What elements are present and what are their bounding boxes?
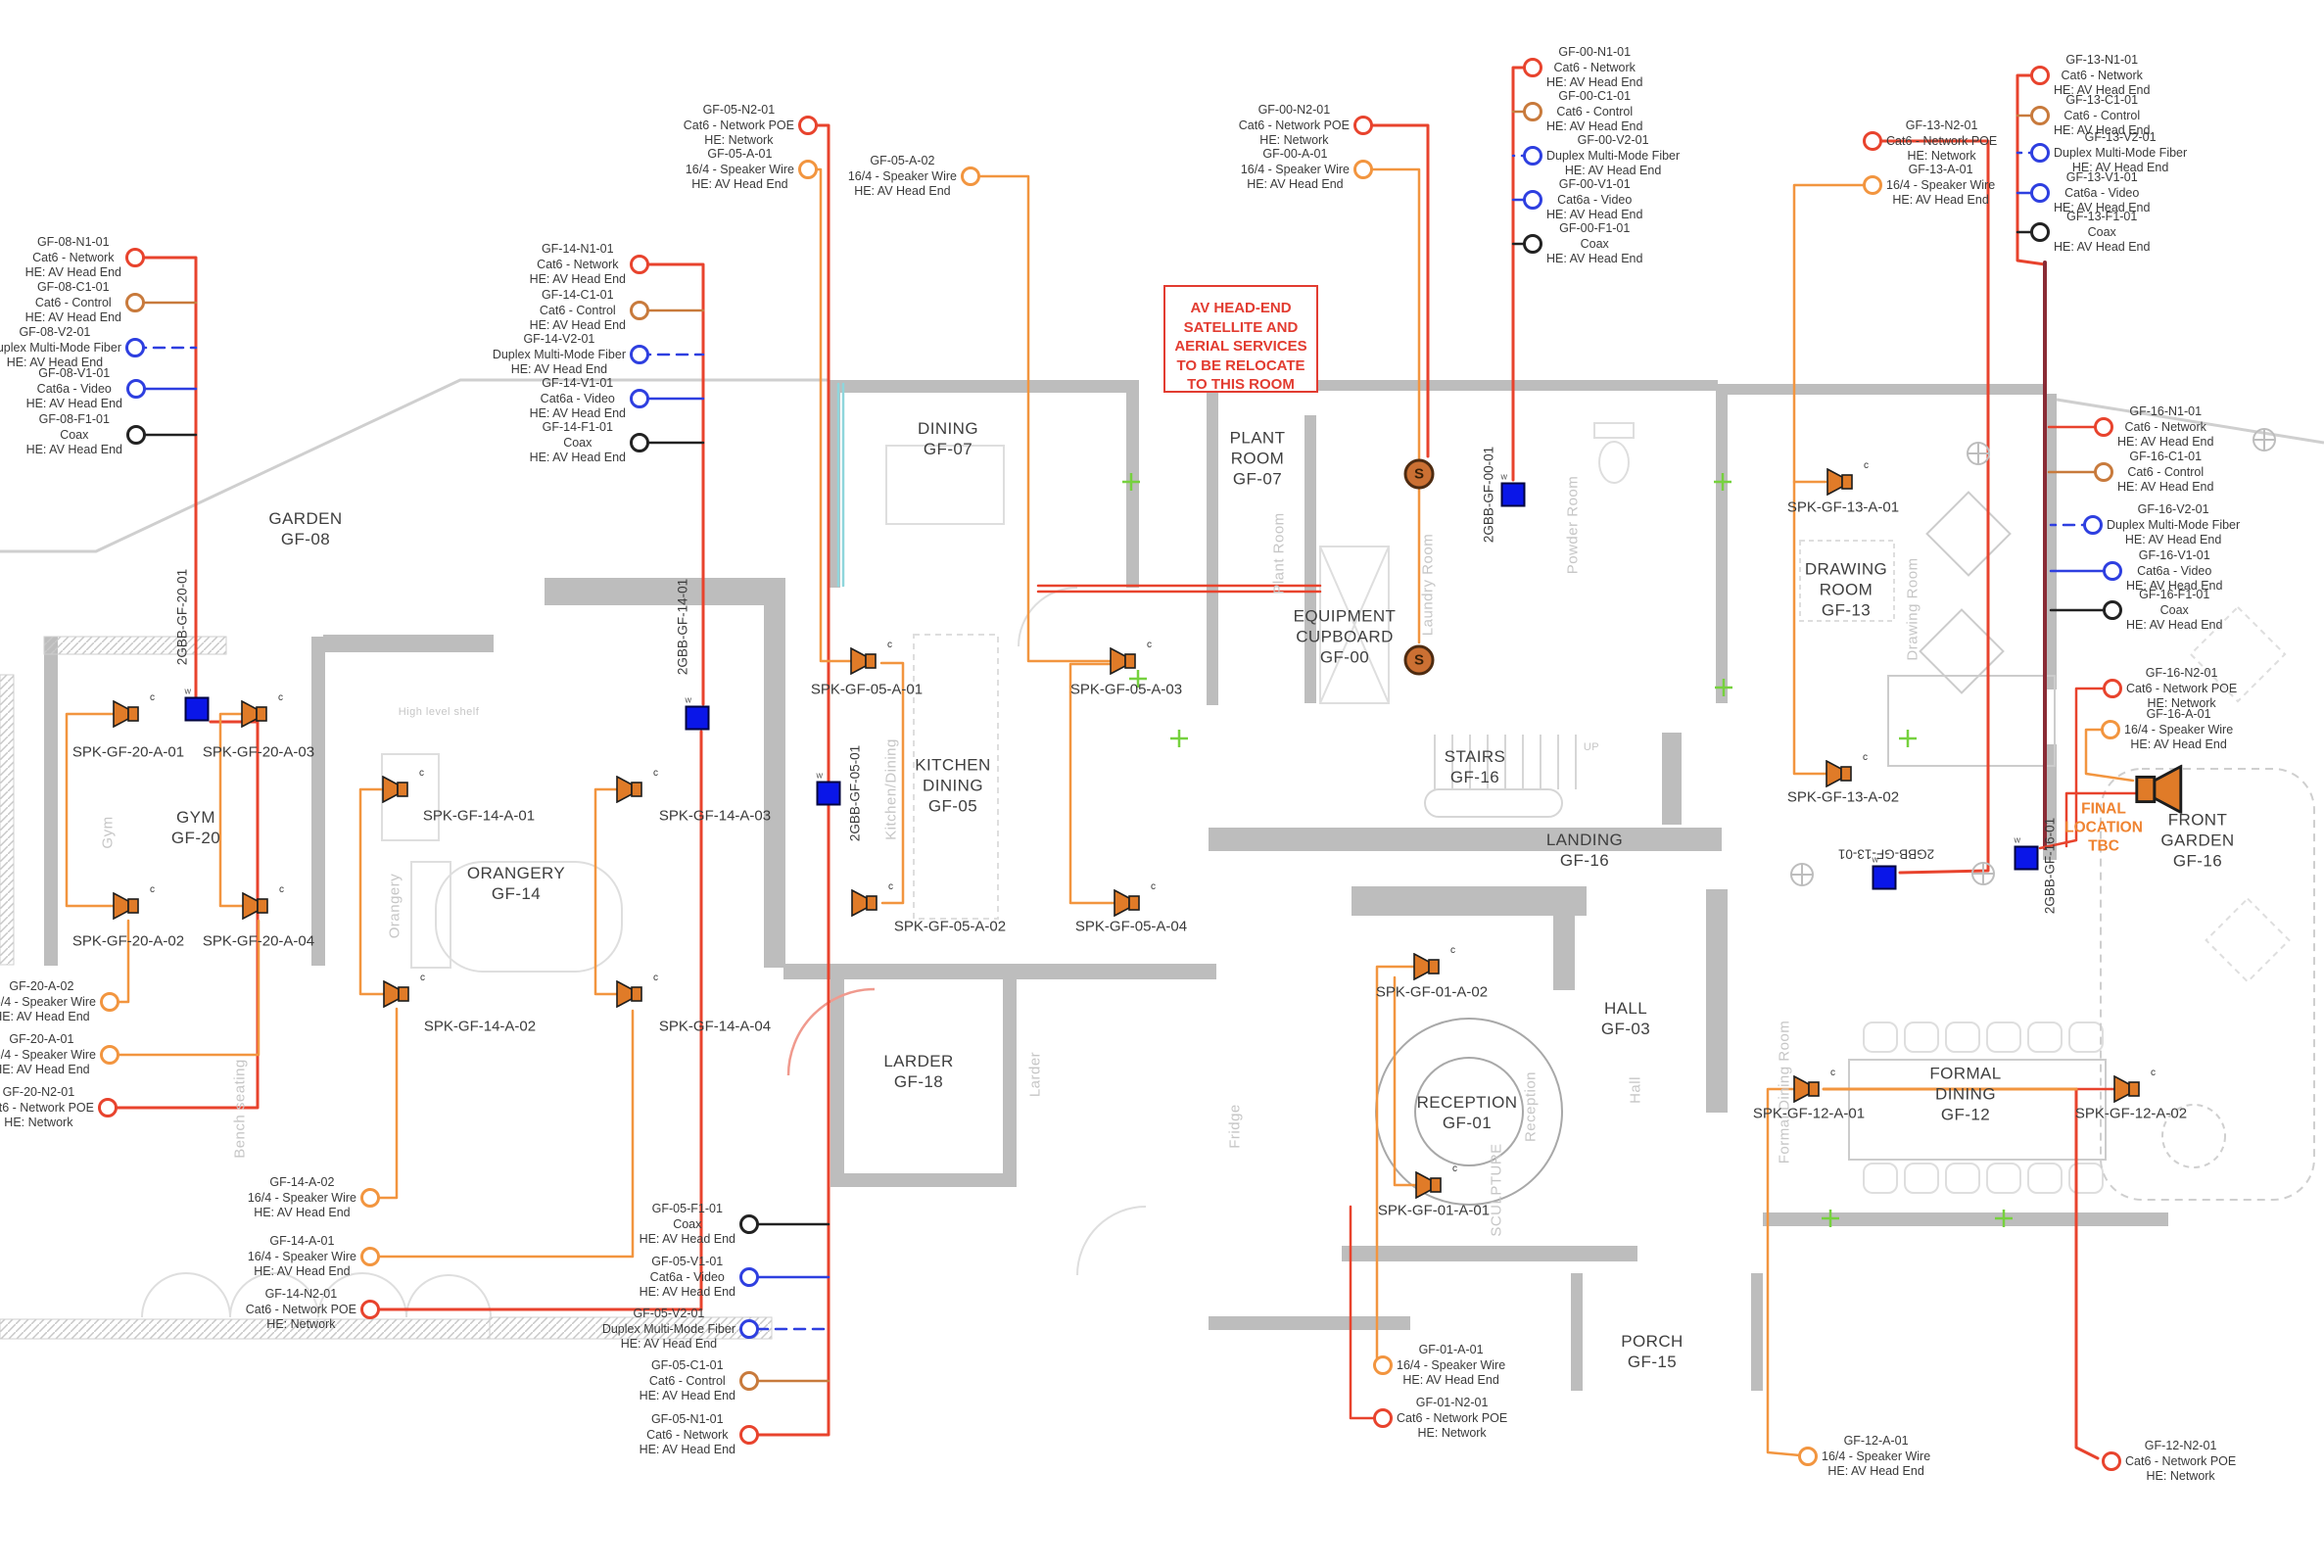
keypad-label: 2GBB-GF-16-01 [2043, 818, 2058, 914]
callout-line: GF-08-F1-01 [26, 412, 122, 428]
speaker-icon: c [1110, 647, 1143, 675]
speaker-icon: c [241, 700, 274, 728]
cable-callout: GF-14-F1-01CoaxHE: AV Head End [530, 420, 626, 466]
callout-line: GF-13-A-01 [1886, 163, 1995, 178]
callout-endpoint-circle [2103, 679, 2122, 698]
architectural-label: Larder [1027, 1052, 1044, 1097]
callout-line: 16/4 - Speaker Wire [1241, 162, 1350, 177]
callout-line: Coax [530, 435, 626, 451]
survey-marker-icon [1968, 443, 1989, 464]
callout-endpoint-circle [100, 1045, 119, 1065]
callout-line: Cat6 - Control [530, 303, 626, 318]
speaker-icon: c [1413, 953, 1447, 980]
cable-callout: GF-05-C1-01Cat6 - ControlHE: AV Head End [640, 1358, 735, 1404]
callout-line: HE: AV Head End [640, 1389, 735, 1404]
keypad-label: 2GBB-GF-05-01 [848, 745, 863, 841]
green-cross-marker [1995, 1210, 2013, 1227]
cables-layer [0, 0, 2324, 1568]
cable-callout: GF-00-V2-01Duplex Multi-Mode FiberHE: AV… [1546, 133, 1680, 179]
speaker-icon: c [850, 647, 883, 675]
callout-line: GF-05-A-02 [848, 154, 957, 169]
cable-callout: GF-05-N1-01Cat6 - NetworkHE: AV Head End [640, 1412, 735, 1458]
callout-line: Duplex Multi-Mode Fiber [1546, 148, 1680, 164]
callout-line: GF-16-F1-01 [2126, 588, 2222, 603]
speaker-label: SPK-GF-12-A-01 [1753, 1106, 1865, 1122]
cable-wire [808, 169, 853, 661]
callout-line: Cat6 - Control [640, 1373, 735, 1389]
survey-marker-icon [1972, 863, 1994, 884]
callout-endpoint-circle [98, 1098, 118, 1117]
architectural-label: Hall [1628, 1076, 1644, 1104]
speaker-label: SPK-GF-20-A-01 [72, 744, 184, 761]
room-label: ORANGERY GF-14 [467, 863, 565, 904]
callout-endpoint-circle [100, 992, 119, 1012]
callout-line: GF-00-V1-01 [1546, 177, 1642, 193]
cable-wire [370, 1011, 633, 1257]
callout-line: GF-16-V2-01 [2107, 502, 2240, 518]
callout-endpoint-circle [126, 425, 146, 445]
room-label: DRAWING ROOM GF-13 [1805, 559, 1887, 621]
keypad-mark: w [2015, 835, 2021, 845]
callout-line: GF-16-N2-01 [2126, 666, 2237, 682]
room-label: PORCH GF-15 [1621, 1331, 1683, 1372]
green-cross-marker [1822, 1210, 1839, 1227]
architectural-label: Orangery [387, 874, 403, 939]
cable-wire [1513, 68, 1533, 480]
callout-line: Cat6 - Network POE [2125, 1453, 2236, 1469]
speaker-icon: c [1114, 889, 1147, 917]
cable-callout: GF-14-V1-01Cat6a - VideoHE: AV Head End [530, 376, 626, 422]
keypad-mark: w [817, 771, 824, 781]
cable-callout: GF-13-N2-01Cat6 - Network POEHE: Network [1886, 119, 1997, 165]
callout-line: Cat6a - Video [640, 1269, 735, 1285]
keypad-icon: w [185, 697, 210, 722]
callout-line: HE: AV Head End [1241, 177, 1350, 193]
callout-line: GF-20-A-01 [0, 1032, 96, 1048]
cable-callout: GF-00-F1-01CoaxHE: AV Head End [1546, 221, 1642, 267]
callout-line: Cat6a - Video [2054, 185, 2150, 201]
ceiling-mark: c [420, 973, 425, 983]
speaker-icon: c [1793, 1075, 1826, 1103]
callout-line: GF-16-N1-01 [2117, 404, 2213, 420]
callout-line: GF-20-N2-01 [0, 1085, 94, 1101]
callout-endpoint-circle [2103, 600, 2122, 620]
cable-callout: GF-16-C1-01Cat6 - ControlHE: AV Head End [2117, 450, 2213, 496]
callout-line: HE: AV Head End [2054, 240, 2150, 256]
architectural-label: High level shelf [399, 706, 480, 718]
callout-line: Coax [640, 1216, 735, 1232]
survey-marker-icon [2253, 429, 2275, 451]
callout-endpoint-circle [630, 345, 649, 364]
callout-endpoint-circle [2083, 515, 2103, 535]
callout-endpoint-circle [360, 1188, 380, 1208]
callout-line: Duplex Multi-Mode Fiber [2107, 517, 2240, 533]
callout-line: Cat6a - Video [26, 381, 122, 397]
callout-line: HE: AV Head End [1397, 1373, 1505, 1389]
callout-line: Coax [2126, 602, 2222, 618]
ceiling-mark: c [888, 881, 893, 892]
cable-callout: GF-08-V1-01Cat6a - VideoHE: AV Head End [26, 366, 122, 412]
cable-wire [595, 789, 618, 994]
callout-line: Coax [26, 427, 122, 443]
ceiling-mark: c [278, 692, 283, 703]
survey-marker-icon [1791, 864, 1813, 885]
callout-endpoint-circle [739, 1267, 759, 1287]
callout-line: Cat6 - Control [2117, 464, 2213, 480]
callout-line: Duplex Multi-Mode Fiber [493, 347, 626, 362]
speaker-icon: c [616, 980, 649, 1008]
cable-callout: GF-14-N2-01Cat6 - Network POEHE: Network [246, 1287, 356, 1333]
architectural-label: Laundry Room [1420, 534, 1437, 636]
callout-line: HE: AV Head End [1886, 193, 1995, 209]
callout-line: GF-05-F1-01 [640, 1202, 735, 1217]
cable-callout: GF-08-V2-01Duplex Multi-Mode FiberHE: AV… [0, 325, 121, 371]
cable-callout: GF-14-A-0216/4 - Speaker WireHE: AV Head… [248, 1175, 356, 1221]
callout-endpoint-circle [739, 1214, 759, 1234]
room-label: RECEPTION GF-01 [1417, 1092, 1518, 1133]
cable-callout: GF-14-C1-01Cat6 - ControlHE: AV Head End [530, 288, 626, 334]
callout-line: GF-16-C1-01 [2117, 450, 2213, 465]
callout-endpoint-circle [125, 293, 145, 312]
ceiling-mark: c [1864, 460, 1869, 471]
callout-line: GF-16-V1-01 [2126, 548, 2222, 564]
speaker-label: SPK-GF-05-A-03 [1070, 682, 1182, 698]
architectural-label: Gym [100, 816, 117, 848]
callout-line: GF-00-C1-01 [1546, 89, 1642, 105]
callout-line: 16/4 - Speaker Wire [2124, 722, 2233, 737]
cable-wire [971, 176, 1113, 661]
keypad-mark: w [686, 695, 692, 705]
green-cross-marker [1170, 730, 1188, 747]
callout-line: 16/4 - Speaker Wire [248, 1190, 356, 1206]
speaker-label: SPK-GF-20-A-03 [203, 744, 314, 761]
cable-callout: GF-00-N2-01Cat6 - Network POEHE: Network [1239, 103, 1350, 149]
cable-callout: GF-16-A-0116/4 - Speaker WireHE: AV Head… [2124, 707, 2233, 753]
speaker-label: SPK-GF-14-A-01 [423, 808, 535, 825]
callout-line: Cat6a - Video [2126, 563, 2222, 579]
callout-endpoint-circle [2030, 106, 2050, 125]
callout-line: GF-08-N1-01 [25, 235, 121, 251]
callout-endpoint-circle [2030, 183, 2050, 203]
cable-wire [220, 714, 243, 906]
room-label: DINING GF-07 [918, 418, 978, 459]
callout-line: GF-14-N1-01 [530, 242, 626, 258]
callout-line: 16/4 - Speaker Wire [248, 1249, 356, 1264]
cable-callout: GF-05-A-0116/4 - Speaker WireHE: AV Head… [686, 147, 794, 193]
callout-line: HE: AV Head End [2124, 737, 2233, 753]
architectural-label: Reception [1523, 1071, 1540, 1142]
callout-line: GF-13-V2-01 [2054, 130, 2187, 146]
keypad-icon: w [686, 706, 710, 731]
callout-line: Cat6 - Network [2117, 419, 2213, 435]
ceiling-mark: c [653, 768, 658, 779]
callout-endpoint-circle [1353, 160, 1373, 179]
speaker-label: SPK-GF-20-A-02 [72, 933, 184, 950]
cable-callout: GF-13-A-0116/4 - Speaker WireHE: AV Head… [1886, 163, 1995, 209]
callout-line: HE: AV Head End [1822, 1464, 1930, 1480]
callout-line: GF-13-N2-01 [1886, 119, 1997, 134]
callout-line: GF-13-F1-01 [2054, 210, 2150, 225]
room-label: PLANT ROOM GF-07 [1230, 428, 1286, 490]
architectural-label: Drawing Room [1905, 557, 1921, 660]
architectural-label: Plant Room [1271, 512, 1288, 594]
cable-wire [1395, 977, 1420, 1185]
callout-line: HE: AV Head End [248, 1264, 356, 1280]
speaker-icon: c [2113, 1075, 2147, 1103]
callout-line: GF-14-A-01 [248, 1234, 356, 1250]
speaker-icon: c [616, 776, 649, 803]
callout-endpoint-circle [125, 338, 145, 357]
callout-line: HE: AV Head End [2117, 480, 2213, 496]
callout-line: Cat6 - Network POE [1239, 118, 1350, 133]
callout-endpoint-circle [1523, 102, 1542, 121]
callout-line: HE: AV Head End [26, 397, 122, 412]
s-device-marker: S [1404, 459, 1435, 490]
callout-line: Cat6 - Network POE [684, 118, 794, 133]
callout-endpoint-circle [360, 1247, 380, 1266]
speaker-label: SPK-GF-13-A-02 [1787, 789, 1899, 806]
cable-callout: GF-13-N1-01Cat6 - NetworkHE: AV Head End [2054, 53, 2150, 99]
callout-line: GF-00-V2-01 [1546, 133, 1680, 149]
callout-line: GF-14-V1-01 [530, 376, 626, 392]
callout-line: GF-13-V1-01 [2054, 170, 2150, 186]
speaker-label: SPK-GF-01-A-02 [1376, 984, 1488, 1001]
callout-endpoint-circle [2094, 462, 2113, 482]
ceiling-mark: c [1147, 640, 1152, 650]
callout-endpoint-circle [630, 301, 649, 320]
callout-line: Cat6a - Video [530, 391, 626, 406]
callout-line: HE: AV Head End [602, 1337, 735, 1353]
s-device-marker: S [1404, 645, 1435, 676]
keypad-label: 2GBB-GF-13-01 [1838, 847, 1934, 862]
callout-endpoint-circle [1353, 116, 1373, 135]
room-label: LARDER GF-18 [883, 1051, 953, 1092]
callout-line: Cat6 - Network POE [1886, 133, 1997, 149]
cable-callout: GF-13-F1-01CoaxHE: AV Head End [2054, 210, 2150, 256]
callout-endpoint-circle [1523, 234, 1542, 254]
speaker-icon: c [1826, 760, 1859, 787]
callout-line: Cat6a - Video [1546, 192, 1642, 208]
callout-line: GF-05-V1-01 [640, 1255, 735, 1270]
keypad-label: 2GBB-GF-00-01 [1482, 447, 1496, 543]
callout-endpoint-circle [1798, 1447, 1818, 1466]
architectural-label: Fridge [1227, 1104, 1244, 1149]
callout-line: GF-01-N2-01 [1397, 1396, 1507, 1411]
callout-endpoint-circle [1523, 146, 1542, 166]
callout-endpoint-circle [1523, 190, 1542, 210]
keypad-icon: w [1873, 866, 1897, 890]
callout-endpoint-circle [961, 166, 980, 186]
callout-endpoint-circle [630, 255, 649, 274]
speaker-label: SPK-GF-14-A-02 [424, 1019, 536, 1035]
callout-line: GF-05-N1-01 [640, 1412, 735, 1428]
ceiling-mark: c [150, 692, 155, 703]
callout-line: HE: AV Head End [1546, 252, 1642, 267]
callout-endpoint-circle [2030, 222, 2050, 242]
callout-line: GF-14-N2-01 [246, 1287, 356, 1303]
speaker-icon: c [382, 776, 415, 803]
speaker-icon: c [1826, 468, 1860, 496]
architectural-label: Bench seating [232, 1059, 249, 1159]
callout-line: Duplex Multi-Mode Fiber [602, 1321, 735, 1337]
speaker-icon: c [113, 700, 146, 728]
callout-line: 16/4 - Speaker Wire [1822, 1449, 1930, 1464]
callout-endpoint-circle [1373, 1355, 1393, 1375]
room-label: GARDEN GF-08 [268, 508, 342, 549]
callout-endpoint-circle [2030, 66, 2050, 85]
callout-line: HE: AV Head End [686, 177, 794, 193]
speaker-label: SPK-GF-13-A-01 [1787, 499, 1899, 516]
callout-line: 16/4 - Speaker Wire [0, 1047, 96, 1063]
callout-line: Cat6 - Network [530, 257, 626, 272]
callout-line: GF-00-F1-01 [1546, 221, 1642, 237]
speaker-label: SPK-GF-12-A-02 [2075, 1106, 2187, 1122]
ceiling-mark: c [653, 973, 658, 983]
cable-callout: GF-12-N2-01Cat6 - Network POEHE: Network [2125, 1439, 2236, 1485]
callout-line: GF-01-A-01 [1397, 1343, 1505, 1358]
architectural-label: Kitchen/Dining [883, 738, 900, 840]
cable-callout: GF-13-V2-01Duplex Multi-Mode FiberHE: AV… [2054, 130, 2187, 176]
room-label: KITCHEN DINING GF-05 [915, 755, 990, 817]
callout-line: 16/4 - Speaker Wire [1397, 1357, 1505, 1373]
keypad-mark: w [1501, 472, 1508, 482]
callout-line: HE: AV Head End [26, 443, 122, 458]
cable-callout: GF-20-A-0116/4 - Speaker WireHE: AV Head… [0, 1032, 96, 1078]
architectural-label: UP [1584, 741, 1599, 753]
callout-endpoint-circle [798, 160, 818, 179]
callout-line: GF-05-V2-01 [602, 1307, 735, 1322]
cable-wire [360, 789, 385, 994]
cable-callout: GF-00-A-0116/4 - Speaker WireHE: AV Head… [1241, 147, 1350, 193]
cable-callout: GF-05-N2-01Cat6 - Network POEHE: Network [684, 103, 794, 149]
cable-wire [67, 714, 115, 906]
ceiling-mark: c [1452, 1164, 1457, 1174]
cable-callout: GF-12-A-0116/4 - Speaker WireHE: AV Head… [1822, 1434, 1930, 1480]
cable-wire [640, 264, 703, 704]
speaker-label: SPK-GF-14-A-04 [659, 1019, 771, 1035]
callout-line: GF-16-A-01 [2124, 707, 2233, 723]
callout-line: HE: AV Head End [2117, 435, 2213, 451]
keypad-icon: w [1501, 483, 1526, 507]
callout-endpoint-circle [1373, 1408, 1393, 1428]
cable-callout: GF-05-F1-01CoaxHE: AV Head End [640, 1202, 735, 1248]
callout-endpoint-circle [2101, 720, 2120, 739]
callout-line: HE: Network [0, 1116, 94, 1131]
callout-line: GF-08-C1-01 [25, 280, 121, 296]
speaker-icon: c [383, 980, 416, 1008]
callout-line: GF-14-V2-01 [493, 332, 626, 348]
callout-line: GF-08-V2-01 [0, 325, 121, 341]
callout-line: HE: AV Head End [640, 1443, 735, 1458]
room-label: LANDING GF-16 [1546, 830, 1623, 871]
callout-line: Coax [1546, 236, 1642, 252]
relocation-note: AV HEAD-END SATELLITE AND AERIAL SERVICE… [1163, 285, 1318, 393]
speaker-icon: c [1415, 1171, 1448, 1199]
callout-line: HE: AV Head End [0, 1063, 96, 1078]
cable-callout: GF-05-V1-01Cat6a - VideoHE: AV Head End [640, 1255, 735, 1301]
speaker-icon: c [113, 892, 146, 920]
speaker-label: SPK-GF-05-A-04 [1075, 919, 1187, 935]
callout-line: GF-13-C1-01 [2054, 93, 2150, 109]
callout-line: HE: AV Head End [530, 272, 626, 288]
ceiling-mark: c [279, 884, 284, 895]
room-label: STAIRS GF-16 [1445, 746, 1506, 787]
callout-line: GF-14-A-02 [248, 1175, 356, 1191]
cable-wire [2076, 1089, 2098, 1458]
callout-line: GF-00-A-01 [1241, 147, 1350, 163]
cable-callout: GF-16-N2-01Cat6 - Network POEHE: Network [2126, 666, 2237, 712]
callout-endpoint-circle [1523, 58, 1542, 77]
room-label: HALL GF-03 [1601, 998, 1650, 1039]
keypad-label: 2GBB-GF-20-01 [175, 569, 190, 665]
green-cross-marker [1715, 679, 1732, 696]
architectural-label: Formal Dining Room [1777, 1021, 1793, 1164]
speaker-label: SPK-GF-05-A-01 [811, 682, 923, 698]
callout-line: Cat6 - Network [2054, 68, 2150, 83]
callout-endpoint-circle [2102, 1451, 2121, 1471]
cable-callout: GF-14-A-0116/4 - Speaker WireHE: AV Head… [248, 1234, 356, 1280]
cable-callout: GF-01-A-0116/4 - Speaker WireHE: AV Head… [1397, 1343, 1505, 1389]
callout-line: GF-08-V1-01 [26, 366, 122, 382]
callout-endpoint-circle [739, 1425, 759, 1445]
callout-line: Duplex Multi-Mode Fiber [2054, 145, 2187, 161]
keypad-mark: w [185, 687, 192, 696]
room-label: FRONT GARDEN GF-16 [2160, 810, 2234, 872]
ceiling-mark: c [1830, 1068, 1835, 1078]
callout-line: Cat6 - Network POE [1397, 1410, 1507, 1426]
callout-line: GF-13-N1-01 [2054, 53, 2150, 69]
room-label: GYM GF-20 [171, 807, 220, 848]
callout-line: GF-05-C1-01 [640, 1358, 735, 1374]
cable-callout: GF-08-F1-01CoaxHE: AV Head End [26, 412, 122, 458]
callout-line: Cat6 - Control [2054, 108, 2150, 123]
ceiling-mark: c [1450, 945, 1455, 956]
cable-callout: GF-00-N1-01Cat6 - NetworkHE: AV Head End [1546, 45, 1642, 91]
callout-line: GF-05-N2-01 [684, 103, 794, 119]
cable-callout: GF-16-N1-01Cat6 - NetworkHE: AV Head End [2117, 404, 2213, 451]
cable-callout: GF-00-V1-01Cat6a - VideoHE: AV Head End [1546, 177, 1642, 223]
speaker-label: SPK-GF-05-A-02 [894, 919, 1006, 935]
cable-callout: GF-01-N2-01Cat6 - Network POEHE: Network [1397, 1396, 1507, 1442]
callout-line: HE: Network [1397, 1426, 1507, 1442]
callout-line: 16/4 - Speaker Wire [686, 162, 794, 177]
callout-endpoint-circle [2030, 143, 2050, 163]
callout-line: GF-20-A-02 [0, 979, 96, 995]
callout-endpoint-circle [2094, 417, 2113, 437]
callout-endpoint-circle [630, 389, 649, 408]
callout-line: HE: AV Head End [25, 310, 121, 326]
cable-wire [1377, 967, 1418, 1362]
callout-line: Cat6 - Network POE [2126, 681, 2237, 696]
cable-callout: GF-16-F1-01CoaxHE: AV Head End [2126, 588, 2222, 634]
callout-line: GF-05-A-01 [686, 147, 794, 163]
callout-line: HE: Network [2125, 1469, 2236, 1485]
callout-line: Coax [2054, 224, 2150, 240]
callout-endpoint-circle [126, 379, 146, 399]
callout-endpoint-circle [125, 248, 145, 267]
callout-line: HE: AV Head End [248, 1206, 356, 1221]
cable-callout: GF-20-A-0216/4 - Speaker WireHE: AV Head… [0, 979, 96, 1025]
callout-line: HE: AV Head End [640, 1232, 735, 1248]
callout-line: Cat6 - Network [1546, 60, 1642, 75]
cable-callout: GF-20-N2-01Cat6 - Network POEHE: Network [0, 1085, 94, 1131]
ceiling-mark: c [150, 884, 155, 895]
cable-callout: GF-05-A-0216/4 - Speaker WireHE: AV Head… [848, 154, 957, 200]
callout-endpoint-circle [630, 433, 649, 452]
cable-wire [1351, 1207, 1375, 1418]
callout-endpoint-circle [1863, 131, 1882, 151]
speaker-icon: c [851, 889, 884, 917]
